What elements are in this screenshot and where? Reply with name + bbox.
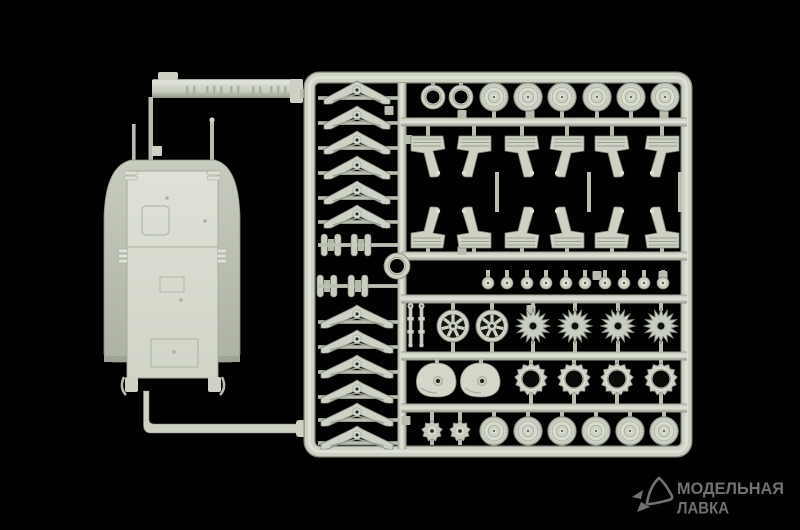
hub-cap [540, 277, 552, 289]
hub-cap [521, 277, 533, 289]
road-wheel [480, 417, 508, 445]
hub-cap [657, 277, 669, 289]
road-wheel [480, 83, 508, 111]
watermark-line1: МОДЕЛЬНАЯ [677, 480, 784, 498]
road-wheel [514, 83, 542, 111]
hub-cap [560, 277, 572, 289]
center-ring [384, 253, 410, 279]
road-wheel [651, 83, 679, 111]
road-wheel [617, 83, 645, 111]
hub-cap [579, 277, 591, 289]
drive-sprocket [644, 309, 679, 344]
photo-stage: МОДЕЛЬНАЯ ЛАВКА [0, 0, 800, 530]
road-wheel [616, 417, 644, 445]
hub-cap [618, 277, 630, 289]
drive-sprocket [601, 309, 636, 344]
road-wheel [650, 417, 678, 445]
hub-cap [482, 277, 494, 289]
hub-cap [599, 277, 611, 289]
drive-sprocket [558, 309, 593, 344]
road-wheel [583, 83, 611, 111]
road-wheel [548, 83, 576, 111]
road-wheel [582, 417, 610, 445]
ring-part [384, 253, 410, 279]
watermark-line2: ЛАВКА [677, 500, 729, 518]
hub-cap [501, 277, 513, 289]
road-wheel [548, 417, 576, 445]
sprue-photo: МОДЕЛЬНАЯ ЛАВКА [0, 0, 800, 530]
hub-cap [638, 277, 650, 289]
drive-sprocket [516, 309, 551, 344]
ring-part [421, 85, 445, 109]
hull-bottom-part [104, 160, 240, 395]
idler-wheel [437, 310, 469, 342]
idler-wheel [476, 310, 508, 342]
road-wheel [514, 417, 542, 445]
ring-part [449, 85, 473, 109]
